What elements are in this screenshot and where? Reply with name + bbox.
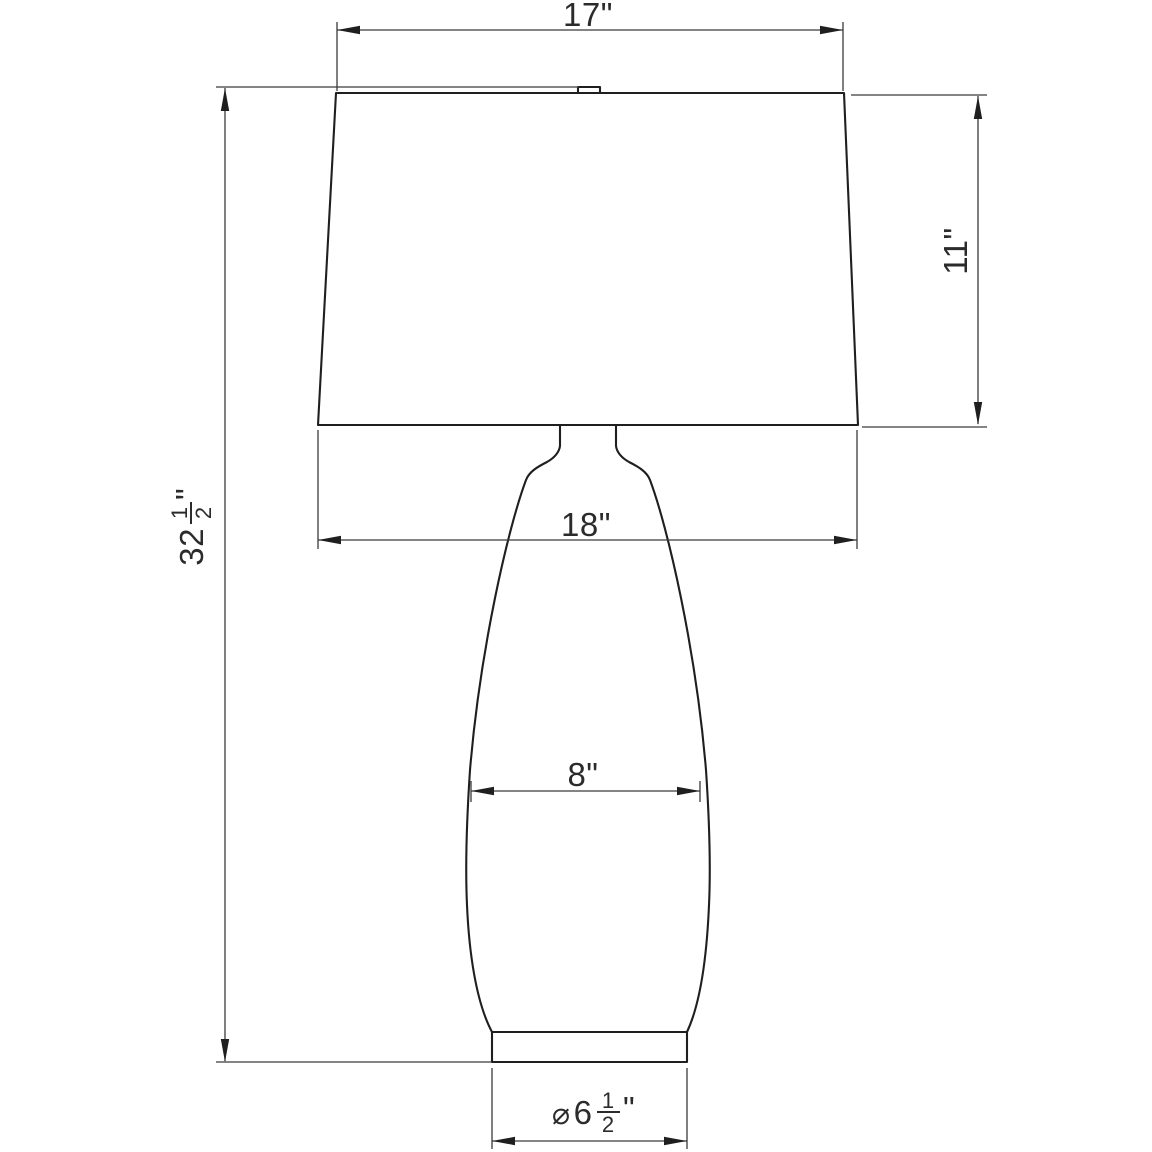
dim-base-diameter-arrowhead-left [492,1137,515,1145]
dim-total-height-arrowhead-bottom [221,1039,229,1062]
dim-body-width-arrowhead-right [677,787,700,795]
dim-shade-bottom-width-arrowhead-left [318,536,341,544]
dim-shade-top-width-arrowhead-right [820,26,843,34]
dim-shade-top-width: 17" [337,0,843,91]
dim-total-height-fraction-numerator: 1 [167,507,192,519]
dim-total-height-label: 32 1 2 " [167,488,216,566]
diameter-symbol-icon: ⌀ [552,1097,570,1132]
diagram-canvas: 17" 32 1 2 " 11" 18" [0,0,1152,1152]
dim-base-diameter-label: ⌀ 6 1 2 " [552,1088,635,1137]
dim-base-diameter-fraction-denominator: 2 [602,1112,614,1137]
lamp-outline [318,87,858,1062]
dim-base-diameter: ⌀ 6 1 2 " [492,1068,687,1149]
base-outline [492,1032,687,1062]
dim-total-height-arrowhead-top [221,88,229,111]
dim-base-diameter-whole: 6 [574,1094,593,1131]
dim-shade-height-label: 11" [937,227,974,274]
dim-shade-height-arrowhead-bottom [974,402,982,425]
dim-shade-height: 11" [851,95,987,427]
body-right-outline [616,425,710,1032]
dim-shade-top-width-label: 17" [563,0,613,33]
dim-shade-bottom-width: 18" [318,430,857,549]
dim-shade-top-width-arrowhead-left [337,26,360,34]
shade-outline [318,93,858,425]
dim-body-width-arrowhead-left [471,787,494,795]
dim-total-height: 32 1 2 " [167,87,579,1062]
dim-total-height-unit: " [169,488,206,500]
dim-shade-bottom-width-arrowhead-right [834,536,857,544]
dim-shade-height-arrowhead-top [974,96,982,119]
dim-base-diameter-arrowhead-right [664,1137,687,1145]
dim-base-diameter-unit: " [623,1090,635,1127]
lamp-dimension-diagram: 17" 32 1 2 " 11" 18" [0,0,1152,1152]
dim-total-height-whole: 32 [173,528,210,566]
body-left-outline [466,425,560,1032]
dim-total-height-fraction-denominator: 2 [191,507,216,519]
dim-shade-bottom-width-label: 18" [561,506,611,543]
dim-body-width-label: 8" [567,756,598,793]
dim-shade-height-label-text: 11" [937,227,974,274]
dim-base-diameter-fraction-numerator: 1 [602,1088,614,1113]
dim-body-width: 8" [471,756,700,802]
